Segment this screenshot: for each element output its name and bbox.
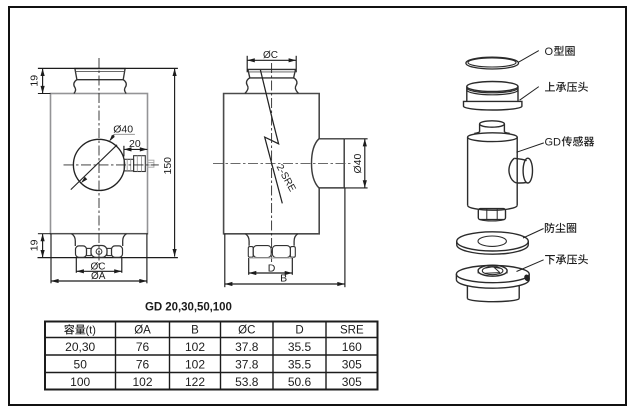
svg-text:SRE: SRE (340, 325, 364, 337)
svg-text:20: 20 (129, 138, 141, 150)
svg-text:ØA: ØA (91, 271, 106, 282)
svg-text:19: 19 (29, 75, 41, 87)
svg-text:102: 102 (132, 375, 152, 389)
svg-text:GD 20,30,50,100: GD 20,30,50,100 (145, 301, 232, 313)
svg-text:160: 160 (342, 340, 362, 354)
svg-text:B: B (280, 273, 287, 285)
svg-text:(t): (t) (86, 325, 96, 337)
svg-text:102: 102 (185, 340, 205, 354)
svg-text:19: 19 (29, 239, 41, 251)
svg-text:100: 100 (70, 375, 90, 389)
svg-text:37.8: 37.8 (235, 357, 259, 371)
svg-text:305: 305 (342, 375, 362, 389)
svg-text:122: 122 (185, 375, 205, 389)
svg-text:37.8: 37.8 (235, 340, 259, 354)
svg-text:D: D (268, 262, 276, 274)
svg-text:ØC: ØC (263, 50, 278, 61)
svg-text:150: 150 (162, 157, 174, 175)
svg-text:20,30: 20,30 (65, 340, 95, 354)
svg-text:GD: GD (545, 137, 562, 149)
svg-text:102: 102 (185, 357, 205, 371)
svg-text:50: 50 (74, 357, 88, 371)
svg-text:O: O (545, 46, 554, 58)
svg-text:D: D (295, 325, 303, 337)
svg-text:76: 76 (136, 340, 150, 354)
svg-text:35.5: 35.5 (288, 340, 312, 354)
svg-text:305: 305 (342, 357, 362, 371)
svg-text:35.5: 35.5 (288, 357, 312, 371)
svg-text:ØC: ØC (238, 325, 255, 337)
svg-text:B: B (191, 325, 199, 337)
svg-text:ØA: ØA (134, 325, 151, 337)
svg-text:53.8: 53.8 (235, 375, 259, 389)
svg-text:50.6: 50.6 (288, 375, 312, 389)
svg-text:Ø40: Ø40 (352, 153, 364, 173)
svg-text:76: 76 (136, 357, 150, 371)
svg-text:Ø40: Ø40 (113, 123, 133, 135)
